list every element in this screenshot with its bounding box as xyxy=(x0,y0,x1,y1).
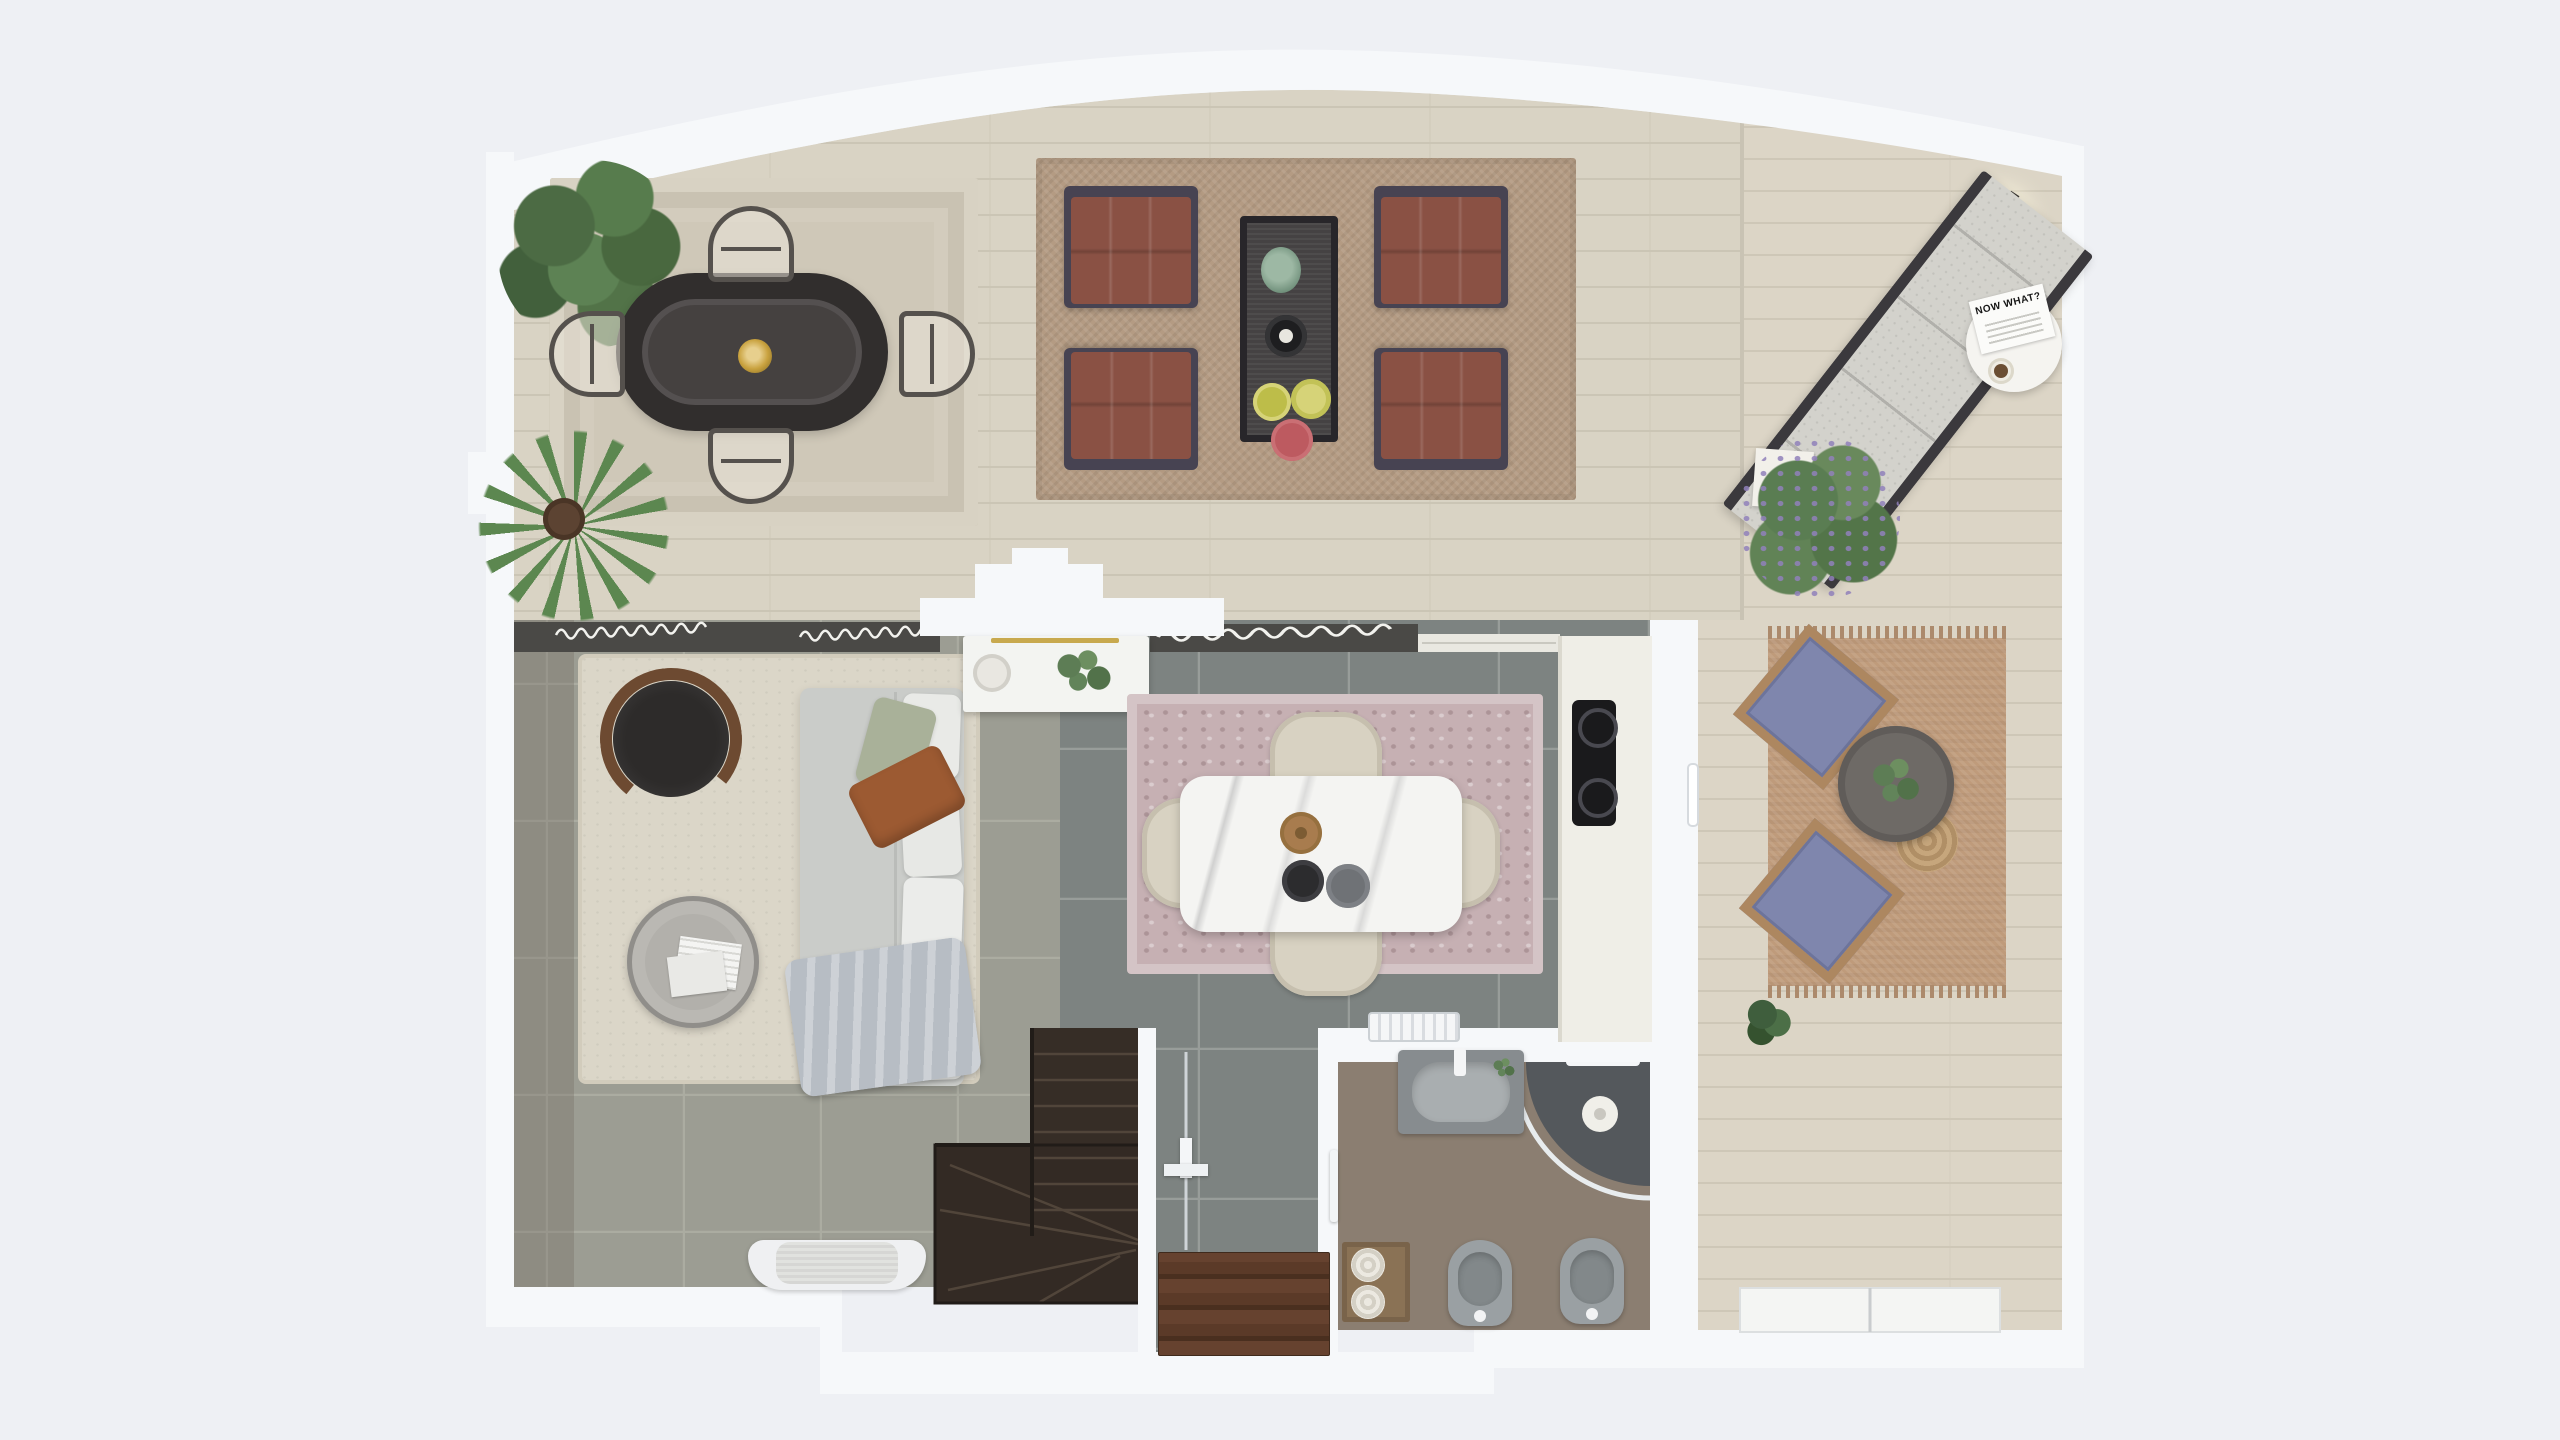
throw-blanket xyxy=(783,936,982,1098)
sideboard-plant xyxy=(1047,642,1121,702)
living-floor-shadow-strip xyxy=(514,620,574,1287)
sideboard-tray xyxy=(973,654,1011,692)
dining-table xyxy=(616,273,888,431)
split-level-wall xyxy=(920,598,1224,636)
induction-cooktop xyxy=(1572,700,1616,826)
round-tray xyxy=(1265,315,1307,357)
bottom-wall-center xyxy=(820,1352,1494,1394)
bidet-bowl xyxy=(1458,1252,1502,1306)
dining-chair-west xyxy=(549,311,625,397)
rolled-towel xyxy=(1351,1285,1385,1319)
radiator xyxy=(1368,1012,1460,1042)
lime-plate-2 xyxy=(1291,379,1331,419)
black-plate xyxy=(1282,860,1324,902)
coffee-cup xyxy=(1988,358,2014,384)
living-coffee-table xyxy=(627,896,759,1028)
left-wall xyxy=(486,152,514,1326)
faucet xyxy=(1454,1048,1466,1076)
patio-table xyxy=(1838,726,1954,842)
lavender-planter xyxy=(1732,430,1906,606)
terrace-door-handle xyxy=(1688,764,1698,826)
white-sideboard xyxy=(963,636,1149,712)
lounge-coffee-table xyxy=(1240,216,1338,442)
armchair-cushion xyxy=(1071,197,1191,304)
white-armchair xyxy=(748,1240,926,1290)
armchair-cushion xyxy=(1381,197,1501,304)
toilet-drain xyxy=(1586,1308,1598,1320)
small-plant xyxy=(1740,992,1796,1048)
terrace-side-table: NOW WHAT? xyxy=(1966,296,2062,392)
living-window-band xyxy=(514,622,950,652)
entry-doormat xyxy=(1158,1252,1330,1356)
entry-left-wall xyxy=(1138,1028,1156,1354)
coffee-table-magazine-2 xyxy=(667,951,727,998)
coat-hook xyxy=(1164,1138,1208,1178)
towel-rail xyxy=(1330,1150,1338,1222)
bottom-wall-right xyxy=(1474,1330,2082,1368)
dining-chair-north xyxy=(708,206,794,282)
wooden-board xyxy=(1280,812,1322,854)
rust-armchair-ne xyxy=(1374,186,1508,308)
red-plate xyxy=(1271,419,1313,461)
pendant-light xyxy=(738,339,772,373)
bidet xyxy=(1448,1240,1512,1326)
bottom-wall-left xyxy=(486,1287,838,1327)
rust-armchair-sw xyxy=(1064,348,1198,470)
sofa xyxy=(800,688,964,1086)
rolled-towel xyxy=(1351,1248,1385,1282)
kitchen-counter xyxy=(1558,636,1652,1042)
bidet-drain xyxy=(1474,1310,1486,1322)
toilet-bowl xyxy=(1570,1250,1614,1304)
armchair-cushion xyxy=(1381,352,1501,459)
gray-plate xyxy=(1326,864,1370,908)
rust-armchair-se xyxy=(1374,348,1508,470)
terrace-sideboard xyxy=(1740,1288,2000,1332)
lavender-flowers xyxy=(1738,436,1900,600)
glass-vase xyxy=(1261,247,1301,293)
vanity-sink xyxy=(1398,1050,1524,1134)
armchair-cushion xyxy=(1071,352,1191,459)
toilet xyxy=(1560,1238,1624,1324)
right-wall xyxy=(2062,146,2084,1368)
rust-armchair-nw xyxy=(1064,186,1198,308)
lime-plate xyxy=(1253,383,1291,421)
marble-island xyxy=(1180,776,1462,932)
vanity-plant xyxy=(1490,1054,1518,1082)
floor-plan-render: NOW WHAT? xyxy=(0,0,2560,1440)
towel-shelf xyxy=(1342,1242,1410,1322)
step-platform xyxy=(975,564,1103,600)
step-tab xyxy=(1012,548,1068,566)
table-plant xyxy=(1866,748,1926,816)
kitchen-terrace-wall xyxy=(1650,620,1698,1368)
palm-plant-pot xyxy=(543,498,585,540)
